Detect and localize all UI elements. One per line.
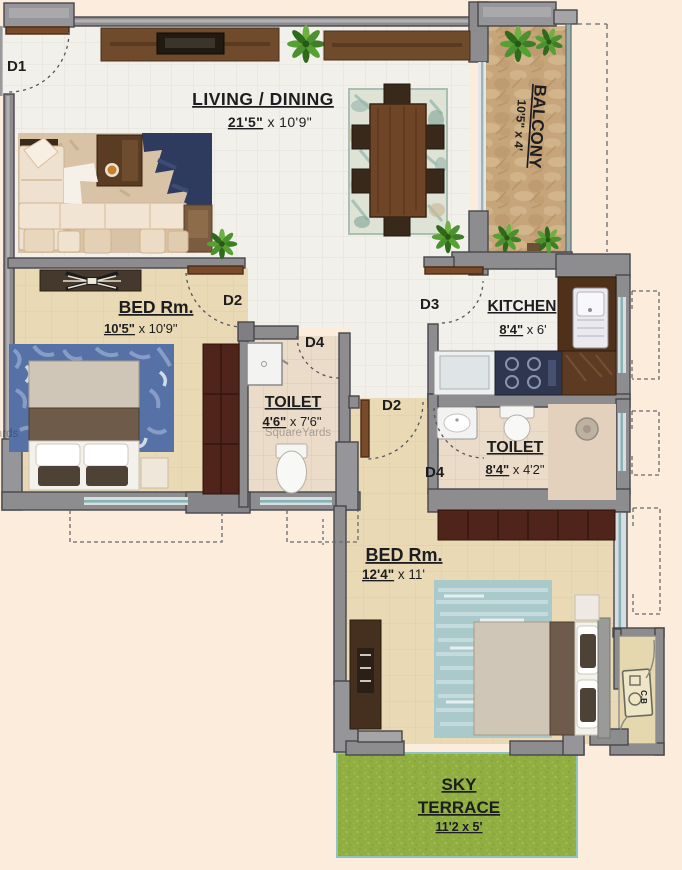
svg-text:TERRACE: TERRACE [418,798,500,817]
svg-text:TOILET: TOILET [265,394,322,411]
svg-text:D1: D1 [7,58,26,75]
svg-text:21'5" x 10'9": 21'5" x 10'9" [228,114,312,130]
svg-text:D2: D2 [223,292,242,309]
svg-text:11'2 x 5': 11'2 x 5' [436,820,483,834]
svg-text:SKY: SKY [442,775,478,794]
svg-text:C.B: C.B [639,690,648,704]
svg-text:SquareYards: SquareYards [0,428,19,440]
svg-text:8'4" x 4'2": 8'4" x 4'2" [486,462,545,477]
svg-text:D2: D2 [382,397,401,414]
svg-text:8'4" x 6': 8'4" x 6' [499,322,546,337]
svg-text:SquareYards: SquareYards [265,427,332,439]
svg-text:D4: D4 [425,464,445,481]
svg-text:12'4" x 11': 12'4" x 11' [362,567,425,582]
svg-text:BED Rm.: BED Rm. [365,545,442,565]
svg-text:10'5" x 10'9": 10'5" x 10'9" [104,321,178,336]
svg-text:LIVING / DINING: LIVING / DINING [192,89,334,109]
svg-text:KITCHEN: KITCHEN [488,298,557,315]
svg-text:TOILET: TOILET [487,439,544,456]
svg-text:D4: D4 [305,334,325,351]
svg-text:D3: D3 [420,296,439,313]
svg-text:BED Rm.: BED Rm. [119,297,194,317]
